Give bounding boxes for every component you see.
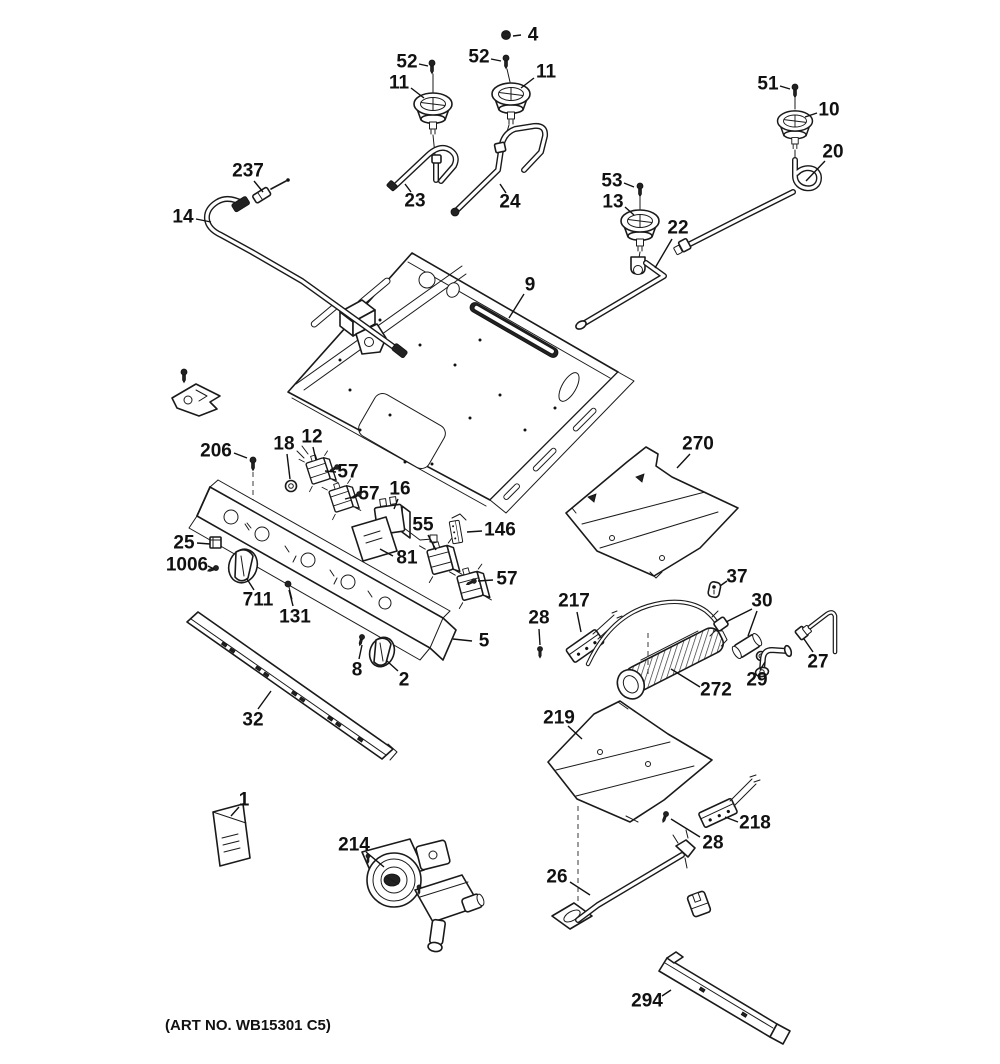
callout-part-number: 237 bbox=[232, 161, 264, 182]
callout-leader-line bbox=[539, 629, 540, 645]
callout-part-number: 13 bbox=[602, 192, 623, 213]
callout-part-number: 131 bbox=[279, 607, 311, 628]
callout-part-number: 30 bbox=[751, 591, 772, 612]
burner-holder-13-drawing bbox=[621, 183, 659, 258]
callout-leader-line bbox=[234, 453, 247, 458]
parts-bag-drawing bbox=[213, 804, 250, 866]
callout-part-number: 23 bbox=[404, 191, 425, 212]
callout-part-number: 217 bbox=[558, 591, 590, 612]
callout-leader-line bbox=[287, 454, 290, 479]
callout-part-number: 14 bbox=[172, 207, 194, 228]
callout-leader-line bbox=[325, 471, 336, 472]
callout-part-number: 214 bbox=[338, 835, 370, 856]
callout-52b: 52 bbox=[468, 47, 501, 68]
callouts-layer: 4521152115110202371423245313229206181257… bbox=[166, 25, 844, 1012]
callout-leader-line bbox=[387, 661, 398, 671]
callout-53: 53 bbox=[601, 171, 634, 192]
callout-leader-line bbox=[254, 181, 263, 192]
callout-part-number: 57 bbox=[358, 484, 379, 505]
callout-part-number: 22 bbox=[667, 218, 688, 239]
callout-294: 294 bbox=[631, 990, 671, 1012]
heat-shield-270-drawing bbox=[566, 447, 738, 578]
callout-leader-line bbox=[570, 882, 590, 895]
callout-part-number: 9 bbox=[525, 275, 536, 296]
callout-leader-line bbox=[453, 639, 472, 641]
diagram-canvas: 4521152115110202371423245313229206181257… bbox=[0, 0, 1000, 1064]
callout-leader-line bbox=[671, 819, 700, 837]
callout-leader-line bbox=[725, 817, 738, 822]
callout-part-number: 10 bbox=[818, 100, 839, 121]
callout-part-number: 146 bbox=[484, 520, 516, 541]
callout-12: 12 bbox=[301, 427, 322, 461]
trim-strip-drawing bbox=[187, 612, 397, 760]
screw-28b-drawing bbox=[661, 811, 670, 824]
callout-11b: 11 bbox=[521, 62, 556, 89]
valve-assembly-214-drawing bbox=[362, 839, 486, 952]
callout-part-number: 206 bbox=[200, 441, 232, 462]
callout-2: 2 bbox=[387, 661, 409, 691]
callout-leader-line bbox=[780, 86, 790, 89]
callout-part-number: 37 bbox=[726, 567, 747, 588]
callout-leader-line bbox=[513, 35, 521, 36]
callout-part-number: 57 bbox=[337, 462, 358, 483]
callout-51: 51 bbox=[757, 74, 790, 95]
screw-28a-drawing bbox=[537, 646, 542, 657]
callout-4: 4 bbox=[513, 25, 539, 46]
callout-219: 219 bbox=[543, 708, 582, 740]
callout-leader-line bbox=[748, 611, 757, 636]
bracket-294-drawing bbox=[659, 952, 790, 1044]
callout-leader-line bbox=[671, 669, 700, 687]
callout-leader-line bbox=[411, 88, 424, 98]
burner-tube-26-drawing bbox=[552, 830, 711, 929]
callout-leader-line bbox=[467, 531, 482, 532]
fitting-27-drawing bbox=[795, 612, 835, 652]
callout-part-number: 29 bbox=[746, 670, 767, 691]
grommet-18-drawing bbox=[286, 481, 297, 492]
callout-30: 30 bbox=[726, 591, 773, 637]
callout-217: 217 bbox=[558, 591, 590, 633]
callout-leader-line bbox=[491, 59, 501, 61]
callout-leader-line bbox=[359, 645, 362, 659]
callout-24: 24 bbox=[499, 184, 521, 213]
callout-part-number: 711 bbox=[243, 590, 274, 611]
callout-part-number: 16 bbox=[389, 479, 410, 500]
callout-11a: 11 bbox=[389, 73, 424, 99]
manifold-pipe-drawing bbox=[207, 196, 408, 359]
callout-part-number: 32 bbox=[242, 710, 263, 731]
callout-part-number: 27 bbox=[807, 652, 828, 673]
callout-part-number: 52 bbox=[396, 52, 417, 73]
callout-part-number: 272 bbox=[700, 680, 732, 701]
burner-holder-11-left-drawing bbox=[414, 60, 452, 155]
callout-part-number: 4 bbox=[528, 25, 539, 46]
callout-part-number: 218 bbox=[739, 813, 771, 834]
callout-leader-line bbox=[662, 990, 671, 996]
burner-holder-10-drawing bbox=[778, 84, 813, 158]
callout-part-number: 20 bbox=[822, 142, 843, 163]
callout-part-number: 219 bbox=[543, 708, 575, 729]
screw-206-drawing bbox=[250, 457, 256, 500]
callout-leader-line bbox=[577, 612, 581, 632]
callout-leader-line bbox=[677, 454, 690, 468]
callout-leader-line bbox=[197, 543, 210, 544]
callout-part-number: 1006 bbox=[166, 555, 208, 576]
callout-leader-line bbox=[419, 64, 428, 66]
callout-206: 206 bbox=[200, 441, 247, 462]
callout-1006: 1006 bbox=[166, 555, 214, 576]
callout-leader-line bbox=[624, 183, 634, 187]
callout-23: 23 bbox=[404, 184, 425, 212]
callout-52a: 52 bbox=[396, 52, 428, 73]
callout-9: 9 bbox=[509, 275, 535, 319]
tube-20-drawing bbox=[673, 160, 819, 255]
callout-part-number: 8 bbox=[352, 660, 363, 681]
callout-part-number: 57 bbox=[496, 569, 517, 590]
tube-22-drawing bbox=[574, 257, 664, 331]
callout-18: 18 bbox=[273, 434, 294, 480]
callout-32: 32 bbox=[242, 691, 271, 731]
parts-diagram-page: 4521152115110202371423245313229206181257… bbox=[0, 0, 1000, 1064]
callout-part-number: 270 bbox=[682, 434, 714, 455]
callout-5: 5 bbox=[453, 631, 490, 652]
callout-leader-line bbox=[478, 580, 493, 581]
callout-272: 272 bbox=[671, 669, 732, 701]
pipe-clamp-bracket-drawing bbox=[172, 369, 220, 416]
callout-part-number: 55 bbox=[412, 515, 434, 536]
callout-part-number: 24 bbox=[499, 192, 521, 213]
callout-27: 27 bbox=[804, 639, 829, 673]
callout-13: 13 bbox=[602, 192, 634, 216]
callout-part-number: 81 bbox=[396, 548, 418, 569]
callout-leader-line bbox=[655, 239, 672, 268]
callout-part-number: 28 bbox=[702, 833, 723, 854]
callout-55: 55 bbox=[412, 515, 436, 551]
igniter-switch-146-drawing bbox=[449, 514, 466, 544]
callout-part-number: 51 bbox=[757, 74, 779, 95]
callout-28a: 28 bbox=[528, 608, 549, 646]
screw-8-drawing bbox=[357, 634, 365, 646]
callout-part-number: 12 bbox=[301, 427, 322, 448]
callout-leader-line bbox=[289, 590, 293, 606]
callout-part-number: 2 bbox=[399, 670, 410, 691]
callout-part-number: 52 bbox=[468, 47, 489, 68]
callout-part-number: 294 bbox=[631, 991, 663, 1012]
callout-146: 146 bbox=[467, 520, 516, 541]
callout-25: 25 bbox=[173, 533, 210, 554]
valve-55-drawing bbox=[419, 537, 461, 582]
callout-part-number: 53 bbox=[601, 171, 622, 192]
art-number-text: (ART NO. WB15301 C5) bbox=[165, 1017, 331, 1034]
tube-24-drawing bbox=[451, 126, 545, 216]
clip-25-drawing bbox=[210, 537, 221, 548]
callout-part-number: 11 bbox=[536, 62, 557, 83]
valve-switch-57b-drawing bbox=[322, 478, 362, 520]
callout-part-number: 28 bbox=[528, 608, 549, 629]
callout-part-number: 18 bbox=[273, 434, 294, 455]
callout-711: 711 bbox=[243, 579, 274, 611]
knob-2-drawing bbox=[366, 634, 399, 670]
callout-270: 270 bbox=[677, 434, 714, 469]
callout-37: 37 bbox=[720, 567, 748, 588]
callout-part-number: 26 bbox=[546, 867, 567, 888]
callout-237: 237 bbox=[232, 161, 264, 193]
callout-leader-line bbox=[804, 639, 813, 652]
callout-leader-line bbox=[258, 691, 271, 709]
callout-26: 26 bbox=[546, 867, 590, 896]
callout-8: 8 bbox=[352, 645, 363, 681]
clip-37-drawing bbox=[707, 581, 721, 598]
callout-20: 20 bbox=[806, 142, 844, 182]
igniter-electrode-237-drawing bbox=[252, 178, 290, 203]
callout-part-number: 1 bbox=[239, 790, 250, 811]
callout-leader-line bbox=[521, 78, 534, 88]
callout-part-number: 25 bbox=[173, 533, 195, 554]
callout-leader-line bbox=[247, 579, 254, 590]
callout-leader-line bbox=[726, 609, 752, 622]
tube-23-drawing bbox=[386, 148, 455, 191]
callout-part-number: 5 bbox=[479, 631, 490, 652]
callout-part-number: 11 bbox=[389, 73, 410, 94]
